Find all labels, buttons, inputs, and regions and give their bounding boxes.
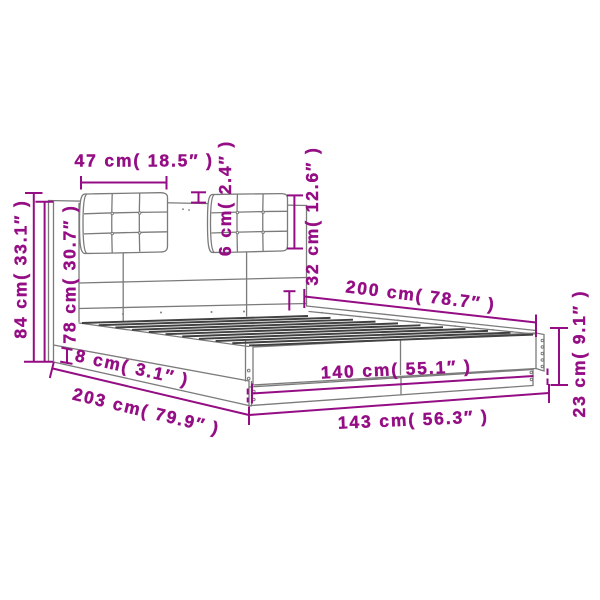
svg-text:78 cm( 30.7″ ): 78 cm( 30.7″ ): [60, 204, 80, 343]
svg-text:23 cm( 9.1″ ): 23 cm( 9.1″ ): [569, 290, 589, 418]
svg-text:6 cm( 2.4″ ): 6 cm( 2.4″ ): [215, 140, 235, 256]
svg-text:47 cm( 18.5″ ): 47 cm( 18.5″ ): [75, 151, 214, 171]
svg-text:32 cm( 12.6″ ): 32 cm( 12.6″ ): [302, 146, 322, 285]
svg-text:84 cm( 33.1″ ): 84 cm( 33.1″ ): [11, 199, 31, 338]
